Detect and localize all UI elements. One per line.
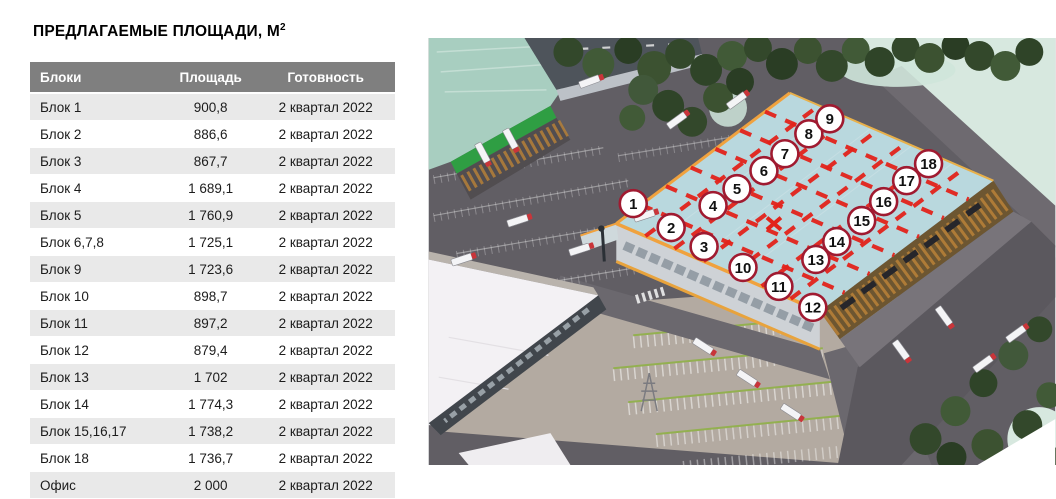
readiness-cell: 2 квартал 2022 [256, 472, 395, 499]
area-cell: 900,8 [165, 93, 256, 121]
readiness-cell: 2 квартал 2022 [256, 229, 395, 256]
area-cell: 886,6 [165, 121, 256, 148]
readiness-cell: 2 квартал 2022 [256, 175, 395, 202]
block-cell: Блок 12 [30, 337, 165, 364]
block-marker-16: 16 [870, 188, 897, 215]
block-cell: Блок 9 [30, 256, 165, 283]
table-row: Блок 15,16,171 738,22 квартал 2022 [30, 418, 395, 445]
svg-text:5: 5 [733, 181, 741, 198]
readiness-cell: 2 квартал 2022 [256, 310, 395, 337]
table-row: Блок 181 736,72 квартал 2022 [30, 445, 395, 472]
block-marker-14: 14 [823, 228, 850, 255]
block-marker-4: 4 [700, 192, 727, 219]
svg-text:16: 16 [875, 194, 892, 211]
svg-text:3: 3 [700, 239, 708, 256]
table-row: Блок 41 689,12 квартал 2022 [30, 175, 395, 202]
svg-text:9: 9 [826, 111, 834, 128]
block-cell: Блок 5 [30, 202, 165, 229]
block-marker-10: 10 [730, 254, 757, 281]
svg-text:18: 18 [920, 156, 937, 173]
block-cell: Блок 13 [30, 364, 165, 391]
svg-text:12: 12 [805, 300, 822, 317]
block-marker-5: 5 [724, 175, 751, 202]
block-cell: Блок 11 [30, 310, 165, 337]
block-marker-1: 1 [620, 190, 647, 217]
table-row: Блок 10898,72 квартал 2022 [30, 283, 395, 310]
svg-text:1: 1 [629, 196, 637, 213]
block-cell: Блок 10 [30, 283, 165, 310]
svg-text:8: 8 [805, 126, 813, 143]
readiness-cell: 2 квартал 2022 [256, 337, 395, 364]
block-marker-11: 11 [765, 273, 792, 300]
area-cell: 2 000 [165, 472, 256, 499]
area-cell: 1 760,9 [165, 202, 256, 229]
svg-text:11: 11 [771, 279, 787, 296]
block-cell: Блок 3 [30, 148, 165, 175]
readiness-cell: 2 квартал 2022 [256, 283, 395, 310]
readiness-cell: 2 квартал 2022 [256, 391, 395, 418]
col-header-blocks: Блоки [30, 62, 165, 93]
block-marker-15: 15 [848, 207, 875, 234]
table-row: Блок 91 723,62 квартал 2022 [30, 256, 395, 283]
table-row: Блок 131 7022 квартал 2022 [30, 364, 395, 391]
area-cell: 1 736,7 [165, 445, 256, 472]
area-cell: 879,4 [165, 337, 256, 364]
area-cell: 1 689,1 [165, 175, 256, 202]
area-cell: 1 725,1 [165, 229, 256, 256]
block-marker-18: 18 [915, 150, 942, 177]
readiness-cell: 2 квартал 2022 [256, 93, 395, 121]
area-cell: 1 738,2 [165, 418, 256, 445]
svg-text:10: 10 [735, 260, 752, 277]
areas-table: Блоки Площадь Готовность Блок 1900,82 кв… [30, 62, 395, 499]
col-header-area: Площадь [165, 62, 256, 93]
svg-text:2: 2 [667, 220, 675, 237]
table-row: Блок 3867,72 квартал 2022 [30, 148, 395, 175]
svg-text:6: 6 [760, 163, 768, 180]
area-cell: 897,2 [165, 310, 256, 337]
readiness-cell: 2 квартал 2022 [256, 121, 395, 148]
svg-text:15: 15 [853, 213, 870, 230]
svg-text:7: 7 [781, 146, 789, 163]
block-cell: Блок 14 [30, 391, 165, 418]
svg-text:4: 4 [709, 198, 718, 215]
area-cell: 1 702 [165, 364, 256, 391]
block-cell: Офис [30, 472, 165, 499]
block-cell: Блок 15,16,17 [30, 418, 165, 445]
block-marker-12: 12 [799, 294, 826, 321]
svg-text:17: 17 [898, 173, 915, 190]
svg-text:14: 14 [828, 234, 845, 251]
block-cell: Блок 6,7,8 [30, 229, 165, 256]
table-row: Офис2 0002 квартал 2022 [30, 472, 395, 499]
table-row: Блок 6,7,81 725,12 квартал 2022 [30, 229, 395, 256]
area-cell: 867,7 [165, 148, 256, 175]
readiness-cell: 2 квартал 2022 [256, 256, 395, 283]
block-marker-3: 3 [691, 233, 718, 260]
area-cell: 898,7 [165, 283, 256, 310]
readiness-cell: 2 квартал 2022 [256, 445, 395, 472]
readiness-cell: 2 квартал 2022 [256, 148, 395, 175]
block-marker-9: 9 [816, 105, 843, 132]
area-cell: 1 723,6 [165, 256, 256, 283]
readiness-cell: 2 квартал 2022 [256, 202, 395, 229]
table-header-row: Блоки Площадь Готовность [30, 62, 395, 93]
col-header-readiness: Готовность [256, 62, 395, 93]
block-marker-7: 7 [771, 140, 798, 167]
block-marker-2: 2 [658, 214, 685, 241]
readiness-cell: 2 квартал 2022 [256, 364, 395, 391]
table-row: Блок 1900,82 квартал 2022 [30, 93, 395, 121]
table-row: Блок 141 774,32 квартал 2022 [30, 391, 395, 418]
block-cell: Блок 2 [30, 121, 165, 148]
site-plan-svg: 123456789101112131415161718 [428, 38, 1056, 465]
block-cell: Блок 1 [30, 93, 165, 121]
area-cell: 1 774,3 [165, 391, 256, 418]
table-row: Блок 2886,62 квартал 2022 [30, 121, 395, 148]
readiness-cell: 2 квартал 2022 [256, 418, 395, 445]
svg-text:13: 13 [808, 252, 825, 269]
block-cell: Блок 18 [30, 445, 165, 472]
areas-table-body: Блок 1900,82 квартал 2022Блок 2886,62 кв… [30, 93, 395, 499]
page-title-sup: 2 [280, 22, 286, 33]
table-row: Блок 11897,22 квартал 2022 [30, 310, 395, 337]
page-title-text: ПРЕДЛАГАЕМЫЕ ПЛОЩАДИ, М [33, 23, 280, 40]
page-title: ПРЕДЛАГАЕМЫЕ ПЛОЩАДИ, М2 [33, 22, 286, 41]
slide: ПРЕДЛАГАЕМЫЕ ПЛОЩАДИ, М2 Блоки Площадь Г… [0, 0, 1056, 488]
site-plan-render: 123456789101112131415161718 [428, 38, 1056, 465]
table-row: Блок 51 760,92 квартал 2022 [30, 202, 395, 229]
block-cell: Блок 4 [30, 175, 165, 202]
table-row: Блок 12879,42 квартал 2022 [30, 337, 395, 364]
